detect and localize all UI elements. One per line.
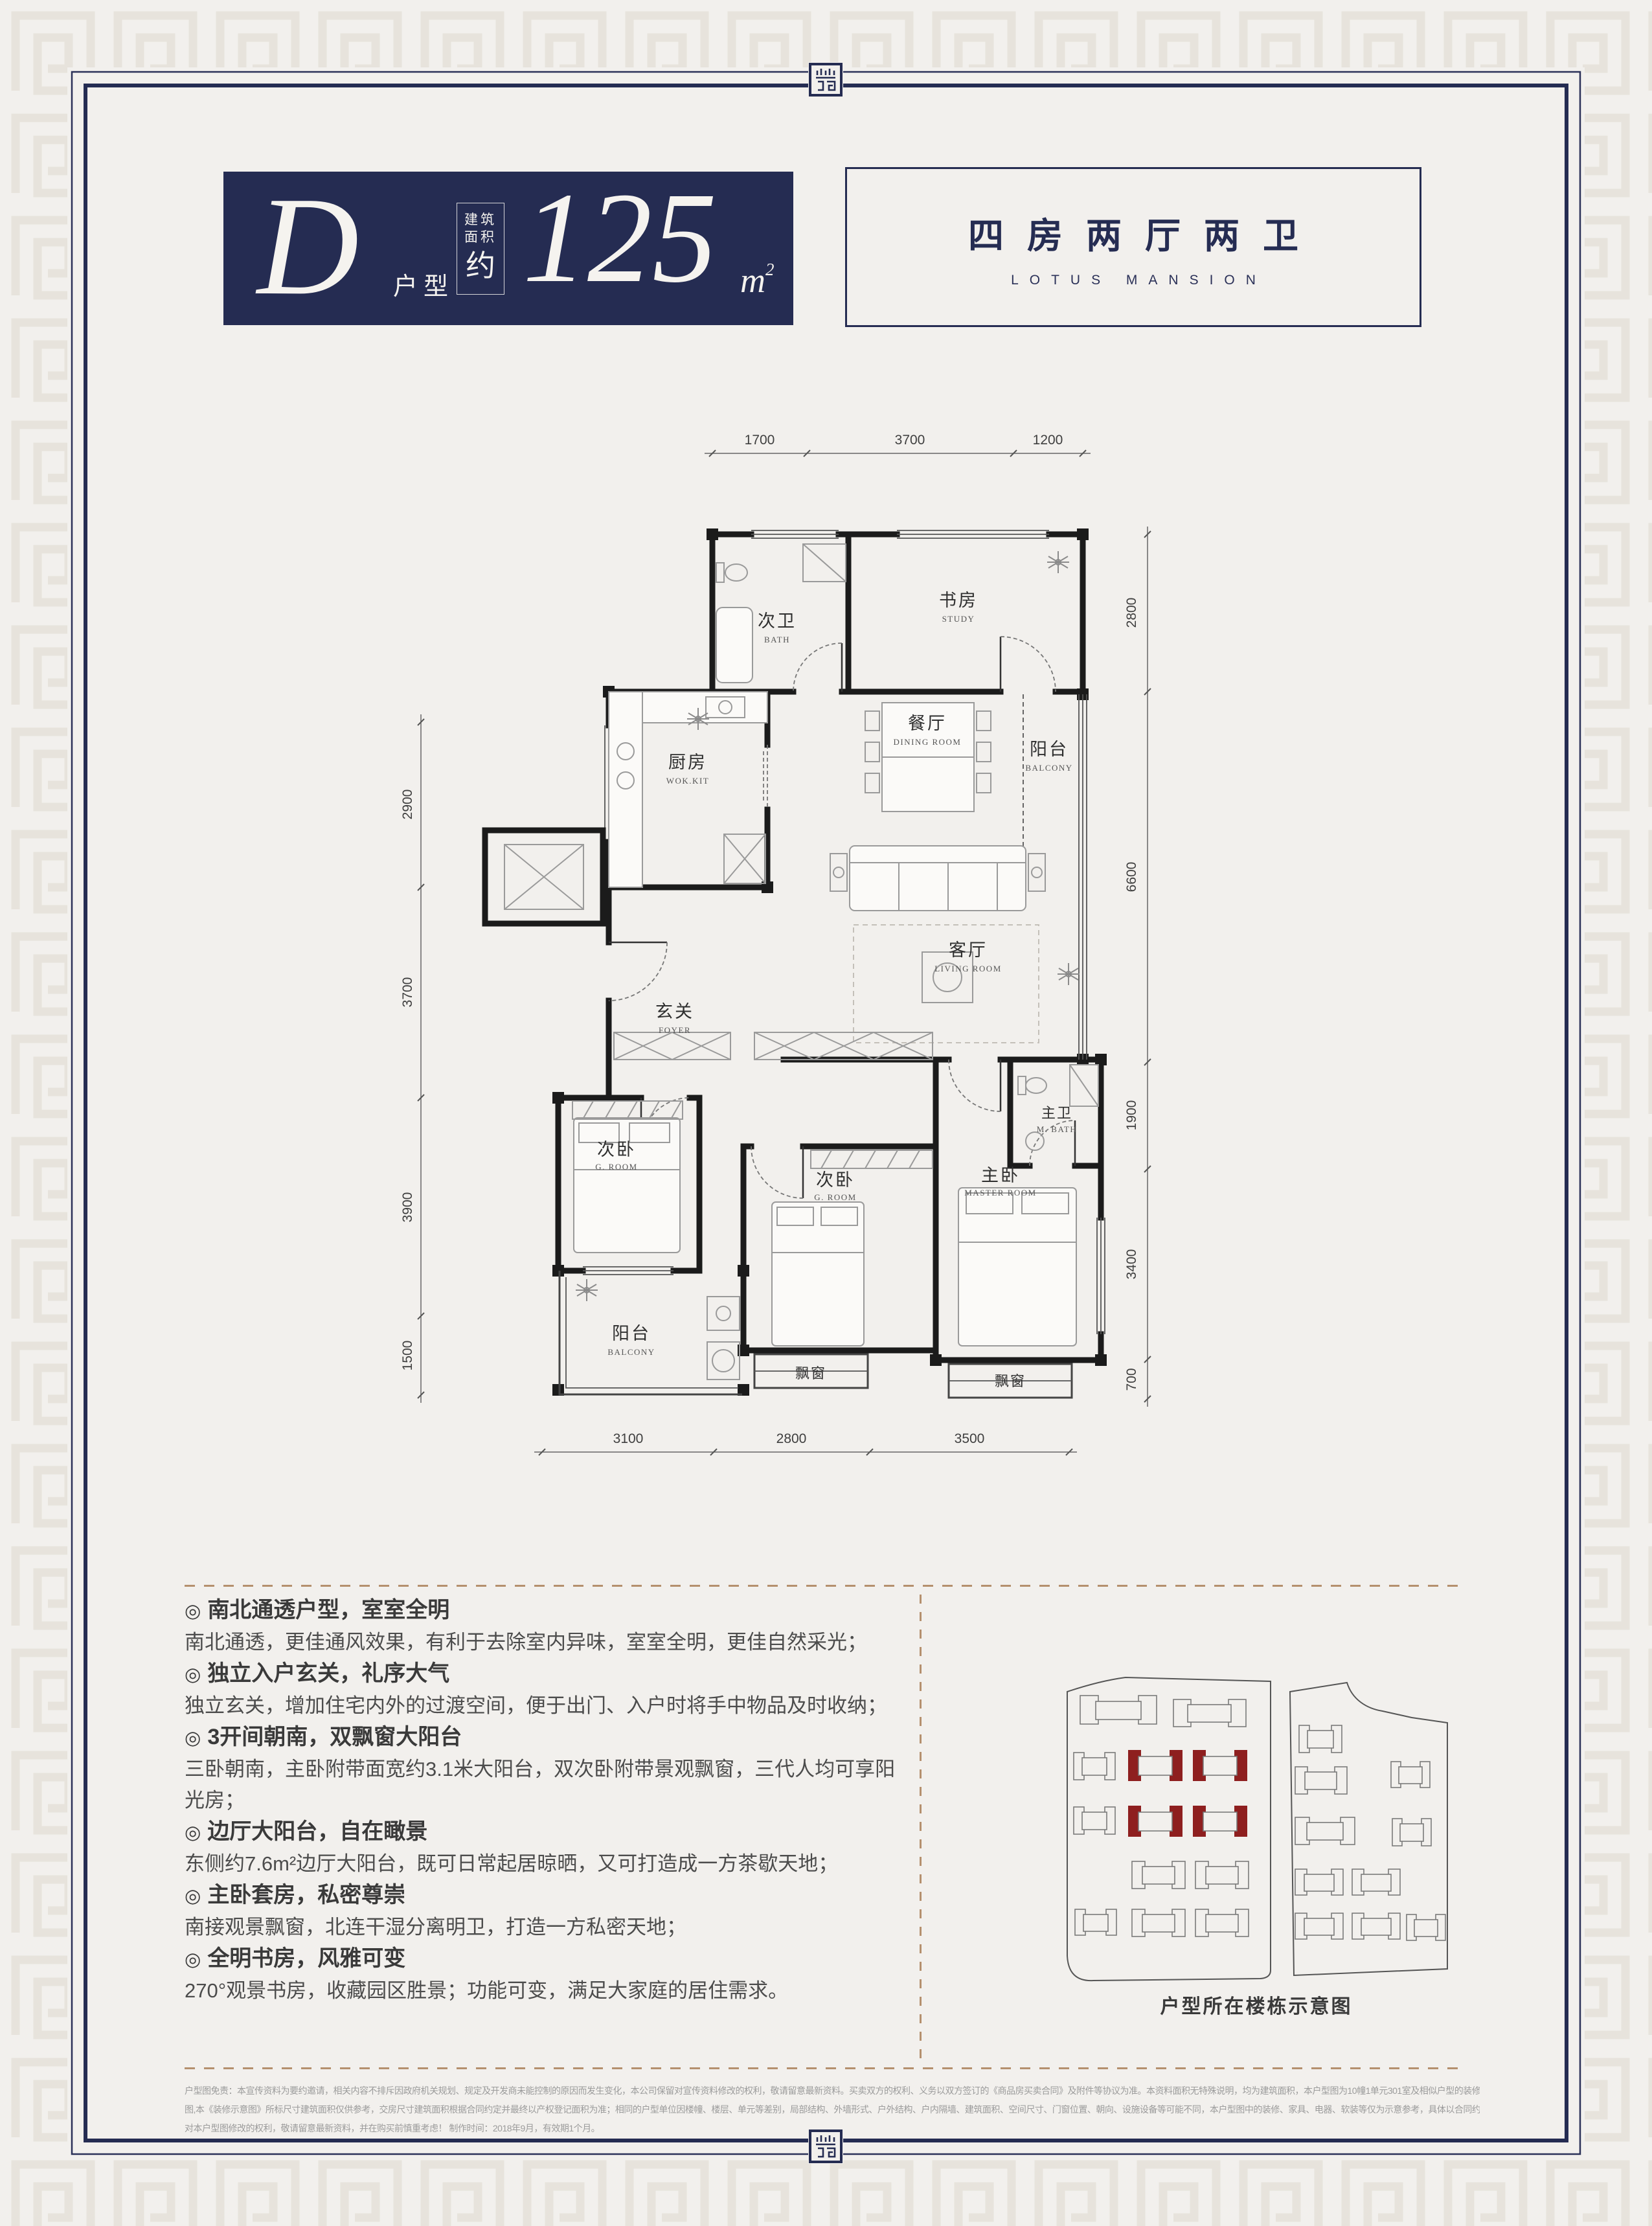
area-box-line: 约 (457, 249, 504, 284)
svg-text:WOK.KIT: WOK.KIT (666, 776, 709, 786)
svg-text:DINING ROOM: DINING ROOM (894, 737, 962, 747)
unit-label: 户型 (393, 266, 454, 302)
feature-body: 270°观景书房，收藏园区胜景；功能可变，满足大家庭的居住需求。 (185, 1975, 909, 2006)
disclaimer: 户型图免责：本宣传资料为要约邀请，相关内容不排斥因政府机关规划、规定及开发商未能… (185, 2082, 1480, 2138)
layout-title: 四房两厅两卫 (847, 207, 1420, 258)
feature-heading: 独立入户玄关，礼序大气 (207, 1661, 449, 1686)
feature-heading: 南北通透户型，室室全明 (207, 1598, 449, 1622)
svg-text:3500: 3500 (955, 1431, 985, 1446)
svg-text:MASTER ROOM: MASTER ROOM (964, 1188, 1037, 1198)
svg-text:BALCONY: BALCONY (1025, 763, 1072, 773)
bay-window-label: 飘窗 (995, 1373, 1026, 1389)
bullet-icon: ◎ (185, 1601, 201, 1622)
feature-item: ◎独立入户玄关，礼序大气 独立玄关，增加住宅内外的过渡空间，便于出门、入户时将手… (185, 1658, 909, 1721)
room-label: 主卫 (1041, 1105, 1072, 1121)
svg-text:3700: 3700 (895, 433, 925, 448)
bullet-icon: ◎ (185, 1949, 201, 1970)
area-value: 125 (523, 144, 717, 332)
feature-item: ◎3开间朝南，双飘窗大阳台 三卧朝南，主卧附带面宽约3.1米大阳台，双次卧附带景… (185, 1721, 909, 1816)
svg-text:3100: 3100 (613, 1431, 644, 1446)
svg-text:3900: 3900 (400, 1192, 415, 1223)
buildings (1074, 1696, 1445, 1940)
svg-text:LIVING ROOM: LIVING ROOM (934, 964, 1002, 973)
room-label: 阳台 (1030, 740, 1069, 759)
site-map-caption: 户型所在楼栋示意图 (1160, 1995, 1353, 2017)
feature-body: 独立玄关，增加住宅内外的过渡空间，便于出门、入户时将手中物品及时收纳； (185, 1690, 909, 1721)
svg-text:1900: 1900 (1124, 1100, 1139, 1131)
area-label-box: 建筑 面积 约 (457, 203, 504, 295)
feature-body: 南北通透，更佳通风效果，有利于去除室内异味，室室全明，更佳自然采光； (185, 1627, 909, 1658)
feature-item: ◎南北通透户型，室室全明 南北通透，更佳通风效果，有利于去除室内异味，室室全明，… (185, 1595, 909, 1658)
highlighted-building (1193, 1750, 1247, 1781)
bullet-icon: ◎ (185, 1728, 201, 1749)
feature-heading: 主卧套房，私密尊崇 (207, 1883, 405, 1907)
svg-text:3400: 3400 (1124, 1249, 1139, 1280)
unit-title-block: D 户型 建筑 面积 约 125 m2 (223, 172, 793, 325)
feature-item: ◎主卧套房，私密尊崇 南接观景飘窗，北连干湿分离明卫，打造一方私密天地； (185, 1880, 909, 1943)
layout-title-box: 四房两厅两卫 LOTUS MANSION (845, 167, 1421, 327)
poster-page: D 户型 建筑 面积 约 125 m2 四房两厅两卫 LOTUS MANSION… (0, 0, 1652, 2226)
site-map: 户型所在楼栋示意图 (926, 1593, 1477, 2034)
room-label: 餐厅 (908, 714, 947, 733)
area-box-line: 建筑 (457, 211, 504, 229)
area-box-line: 面积 (457, 229, 504, 246)
furniture (485, 544, 1098, 1380)
svg-text:G. ROOM: G. ROOM (595, 1162, 637, 1172)
svg-text:1700: 1700 (745, 433, 775, 448)
room-label: 次卫 (758, 611, 797, 631)
bullet-icon: ◎ (185, 1664, 201, 1685)
highlighted-building (1193, 1806, 1247, 1837)
svg-text:2800: 2800 (776, 1431, 807, 1446)
feature-heading: 3开间朝南，双飘窗大阳台 (207, 1725, 462, 1749)
unit-letter: D (257, 150, 359, 344)
svg-text:STUDY: STUDY (942, 614, 975, 624)
highlighted-building (1128, 1806, 1182, 1837)
separator-vertical (920, 1595, 922, 2062)
separator-bottom (185, 2067, 1467, 2069)
disclaimer-line: 对本户型图修改的权利，敬请留意最新资料，并在购买前慎重考虑！ 制作时间：2018… (185, 2119, 1480, 2138)
separator-top (185, 1585, 1467, 1587)
disclaimer-line: 图,本《装修示意图》所标尺寸建筑面积仅供参考，交房尺寸建筑面积根据合同约定并最终… (185, 2100, 1480, 2119)
feature-list: ◎南北通透户型，室室全明 南北通透，更佳通风效果，有利于去除室内异味，室室全明，… (185, 1595, 909, 2006)
svg-text:G. ROOM: G. ROOM (814, 1192, 856, 1202)
svg-text:FOYER: FOYER (659, 1025, 691, 1035)
room-label: 书房 (939, 591, 978, 610)
room-label: 主卧 (981, 1166, 1020, 1185)
feature-item: ◎边厅大阳台，自在瞰景 东侧约7.6m²边厅大阳台，既可日常起居晾晒，又可打造成… (185, 1816, 909, 1880)
room-label: 次卧 (816, 1170, 855, 1190)
svg-text:6600: 6600 (1124, 862, 1139, 892)
svg-text:2800: 2800 (1124, 598, 1139, 628)
bay-window-label: 飘窗 (795, 1365, 826, 1381)
feature-heading: 全明书房，风雅可变 (207, 1946, 405, 1971)
bullet-icon: ◎ (185, 1886, 201, 1907)
layout-subtitle: LOTUS MANSION (847, 273, 1420, 288)
floor-plan: 1700 3700 1200 3100 2800 3500 2900 3700 … (363, 389, 1243, 1490)
room-label: 次卧 (597, 1140, 636, 1159)
svg-text:3700: 3700 (400, 977, 415, 1008)
room-label: 阳台 (612, 1324, 651, 1343)
feature-body: 南接观景飘窗，北连干湿分离明卫，打造一方私密天地； (185, 1912, 909, 1943)
room-label: 厨房 (668, 753, 707, 772)
svg-text:700: 700 (1124, 1368, 1139, 1391)
svg-text:BALCONY: BALCONY (607, 1347, 655, 1357)
bullet-icon: ◎ (185, 1823, 201, 1843)
feature-body: 三卧朝南，主卧附带面宽约3.1米大阳台，双次卧附带景观飘窗，三代人均可享阳光房； (185, 1754, 909, 1816)
svg-text:BATH: BATH (764, 635, 790, 644)
area-unit: m2 (740, 252, 775, 298)
svg-text:2900: 2900 (400, 789, 415, 820)
highlighted-building (1128, 1750, 1182, 1781)
svg-text:M. BATH: M. BATH (1037, 1124, 1078, 1134)
feature-body: 东侧约7.6m²边厅大阳台，既可日常起居晾晒，又可打造成一方茶歇天地； (185, 1848, 909, 1880)
svg-text:1500: 1500 (400, 1341, 415, 1371)
room-label: 玄关 (655, 1002, 694, 1021)
disclaimer-line: 户型图免责：本宣传资料为要约邀请，相关内容不排斥因政府机关规划、规定及开发商未能… (185, 2082, 1480, 2100)
feature-item: ◎全明书房，风雅可变 270°观景书房，收藏园区胜景；功能可变，满足大家庭的居住… (185, 1943, 909, 2006)
room-label: 客厅 (949, 940, 988, 960)
feature-heading: 边厅大阳台，自在瞰景 (207, 1819, 427, 1844)
svg-text:1200: 1200 (1033, 433, 1063, 448)
